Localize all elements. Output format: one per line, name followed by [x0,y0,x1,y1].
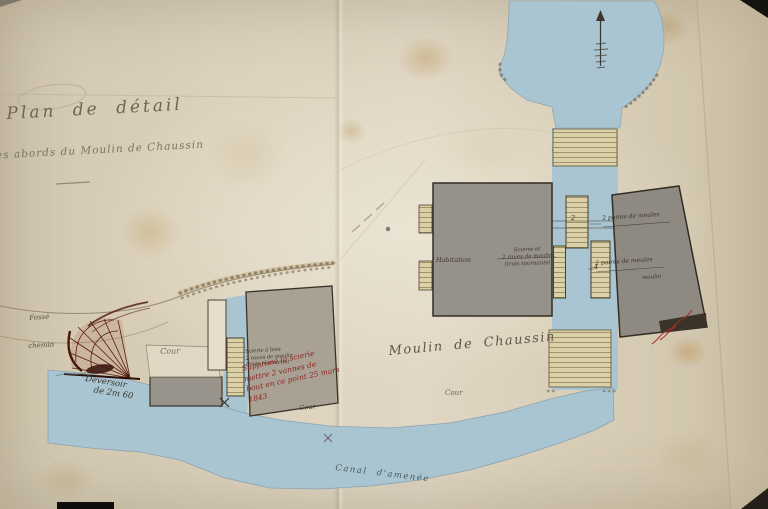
pencil-marks [340,160,425,260]
right-sheet-shade [697,0,768,509]
cour-below-note-label: Cour [299,402,316,412]
building-small-gray [150,377,222,406]
water-wheel [566,196,588,248]
wheel-mark: 4 [594,263,598,271]
plan-drawing [0,0,768,509]
right-building-label-bottom: moulin [642,274,661,281]
building-white [208,300,226,370]
upper-bridge [553,129,617,166]
cour-left-label: Cour [160,346,180,356]
side-wheel [419,261,432,290]
side-wheel [419,205,432,233]
machine-note: Scierie et 2 roues de moulin (trois tour… [496,246,559,269]
scanned-plan-photo: Plan de détail des abords du Moulin de C… [0,0,768,509]
upper-river [499,1,664,128]
fosse-label: Fossé [29,313,50,322]
lower-bridge [549,330,611,387]
wheel-mark: 2 [571,214,575,222]
cour-center-label: Cour [445,389,462,397]
habitation-label: Habitation [436,256,471,264]
chemin-label: chemin [28,341,54,350]
